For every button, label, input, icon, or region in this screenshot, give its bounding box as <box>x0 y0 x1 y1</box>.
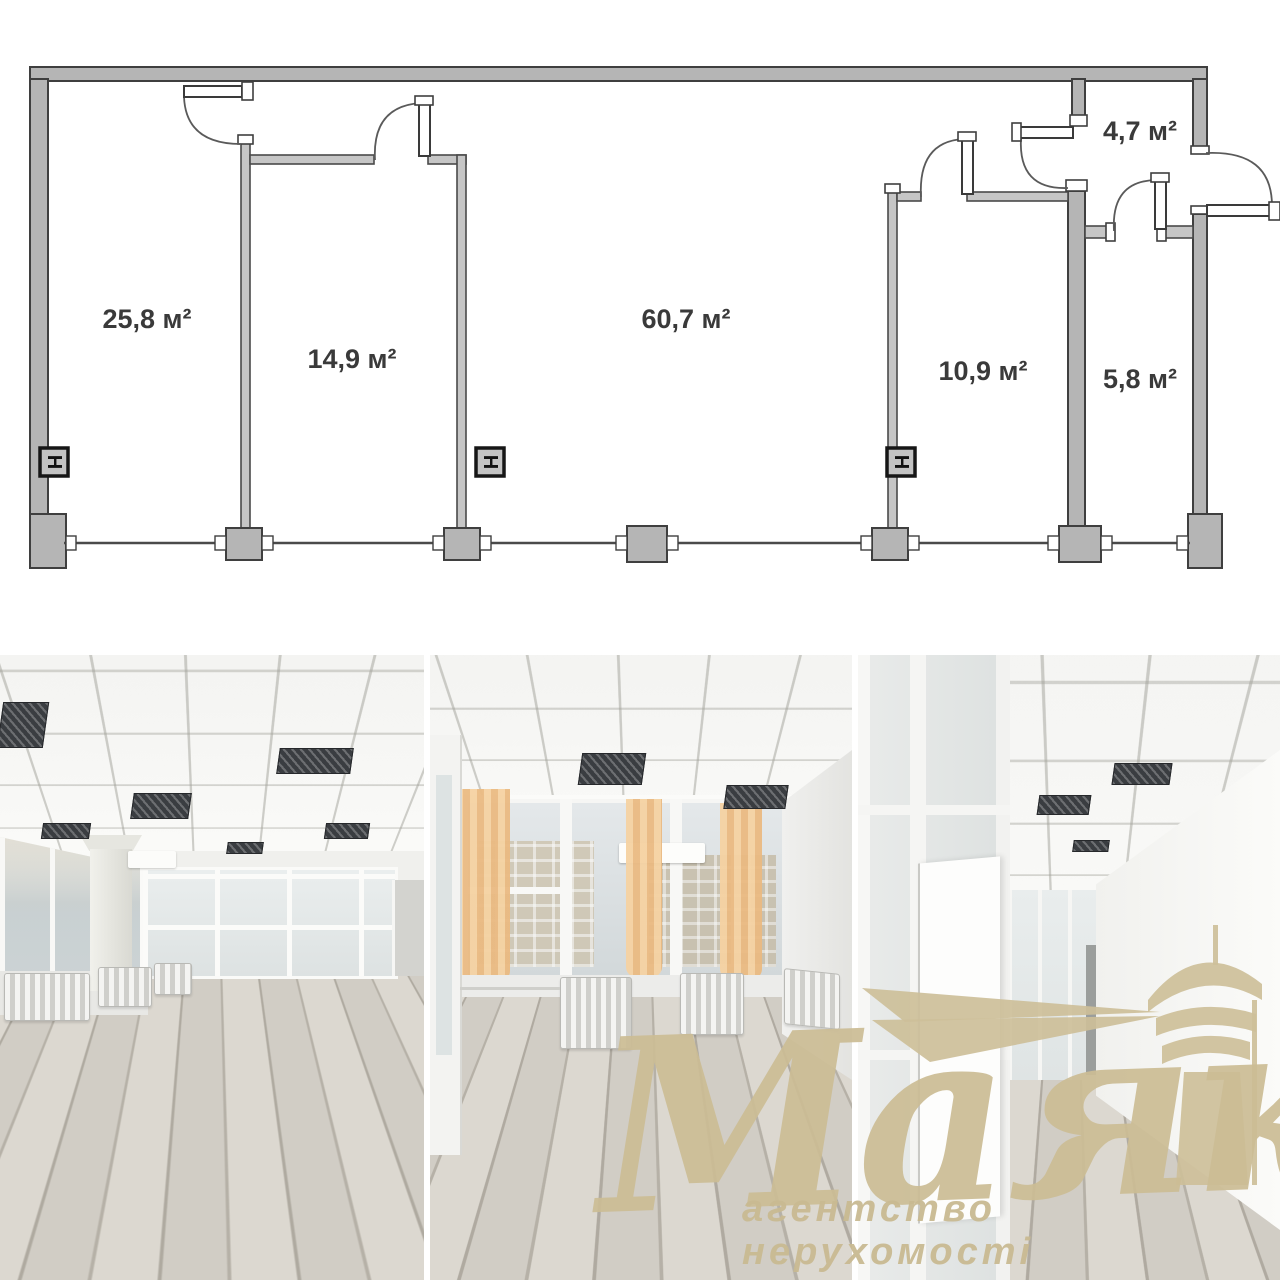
ceiling-vent <box>1111 763 1172 785</box>
interior-photo-right <box>858 655 1280 1280</box>
fire-hydrant-icon: H <box>476 448 504 476</box>
partition-post <box>858 655 870 1280</box>
column <box>444 528 480 560</box>
ceiling-vent <box>324 823 370 839</box>
heating-pipe <box>460 987 560 990</box>
glass-partition <box>858 655 1010 1280</box>
ceiling-vent <box>0 702 49 748</box>
wall-room2-top-a <box>250 155 374 164</box>
door-arc <box>375 103 421 160</box>
fire-hydrant-icon: H <box>887 448 915 476</box>
window-nub <box>480 536 491 550</box>
ceiling-vent <box>723 785 788 809</box>
door-arc <box>184 97 241 144</box>
window-nub <box>215 536 226 550</box>
window-nub <box>908 536 919 550</box>
window-nub <box>861 536 872 550</box>
window-mullion <box>670 799 682 981</box>
column <box>627 526 667 562</box>
room-area-label: 60,7 м² <box>641 304 730 334</box>
side-wall <box>782 750 852 1080</box>
door-cap <box>242 82 253 100</box>
radiator <box>4 973 90 1021</box>
room-area-label: 10,9 м² <box>938 356 1027 386</box>
radiator <box>784 968 840 1030</box>
door-cap <box>1151 173 1169 182</box>
door-leaf <box>184 86 242 97</box>
fire-hydrant-icon: H <box>40 448 68 476</box>
doorway-opening <box>392 880 424 976</box>
wall-room2-left <box>241 143 250 533</box>
jamb <box>238 135 253 144</box>
window-nub <box>1177 536 1188 550</box>
door-cap <box>958 132 976 141</box>
wall-right-lower <box>1193 214 1207 527</box>
wall-left-foot <box>30 514 66 568</box>
floor-plan: H H H 25,8 м² 14,9 м² 60,7 м² 10,9 м² 5,… <box>0 0 1280 650</box>
column <box>226 528 262 560</box>
open-door <box>918 856 1000 1223</box>
ceiling-vent <box>226 842 264 854</box>
fire-hydrant-symbol: H <box>890 455 912 469</box>
jamb <box>1070 115 1087 126</box>
door-leaf <box>1155 178 1166 229</box>
wall-room2-right <box>457 155 466 533</box>
fire-hydrant-symbol: H <box>479 455 501 469</box>
photo-strip <box>0 655 1280 1280</box>
interior-photo-left <box>0 655 424 1280</box>
door-leaf <box>419 101 430 156</box>
partition-transom <box>858 805 1010 815</box>
wall-right-upper <box>1193 79 1207 153</box>
door-leaf <box>962 137 973 194</box>
curtain <box>456 789 510 981</box>
radiator <box>98 967 152 1007</box>
entrance-door-leaf <box>1207 205 1273 216</box>
door-cap <box>1269 202 1280 220</box>
jamb <box>885 184 900 193</box>
curtain <box>626 799 662 977</box>
column <box>1059 526 1101 562</box>
air-conditioner <box>128 851 176 868</box>
interior-photo-middle <box>430 655 852 1280</box>
listing-image: H H H 25,8 м² 14,9 м² 60,7 м² 10,9 м² 5,… <box>0 0 1280 1280</box>
room-area-label: 4,7 м² <box>1103 116 1177 146</box>
curtain <box>720 803 762 979</box>
ceiling-vent <box>1037 795 1092 815</box>
wall-room4-top-b <box>967 192 1068 201</box>
ceiling-vent <box>276 748 354 774</box>
wall-top <box>30 67 1207 81</box>
window-nub <box>1048 536 1059 550</box>
wall-right-foot <box>1188 514 1222 568</box>
room-area-label: 5,8 м² <box>1103 364 1177 394</box>
ceiling-vent <box>41 823 91 839</box>
radiator <box>680 973 744 1035</box>
window-nub <box>433 536 444 550</box>
window-nub <box>262 536 273 550</box>
door-leaf <box>1019 127 1073 138</box>
wall-room4-left <box>888 192 897 533</box>
room-area-label: 14,9 м² <box>307 344 396 374</box>
jamb <box>1066 180 1087 191</box>
radiator <box>154 963 192 995</box>
room-area-label: 25,8 м² <box>102 304 191 334</box>
fire-hydrant-symbol: H <box>43 455 65 469</box>
door-arc <box>1021 138 1068 188</box>
window-nub <box>667 536 678 550</box>
ceiling-vent <box>130 793 192 819</box>
column <box>872 528 908 560</box>
wall-divider <box>1068 191 1085 533</box>
ceiling-vent <box>1072 840 1110 852</box>
window-nub <box>616 536 627 550</box>
door-cap <box>415 96 433 105</box>
wall-vestibule-left <box>1072 79 1085 117</box>
door-cap <box>1012 123 1021 141</box>
door-arc <box>1206 153 1272 206</box>
ceiling-vent <box>578 753 646 785</box>
radiator <box>560 977 632 1049</box>
door-arc <box>1114 180 1156 231</box>
window-nub <box>66 536 76 550</box>
door-arc <box>921 139 963 197</box>
window-nub <box>1101 536 1112 550</box>
partition-glass <box>436 775 452 1055</box>
partition-edge <box>430 735 462 1155</box>
